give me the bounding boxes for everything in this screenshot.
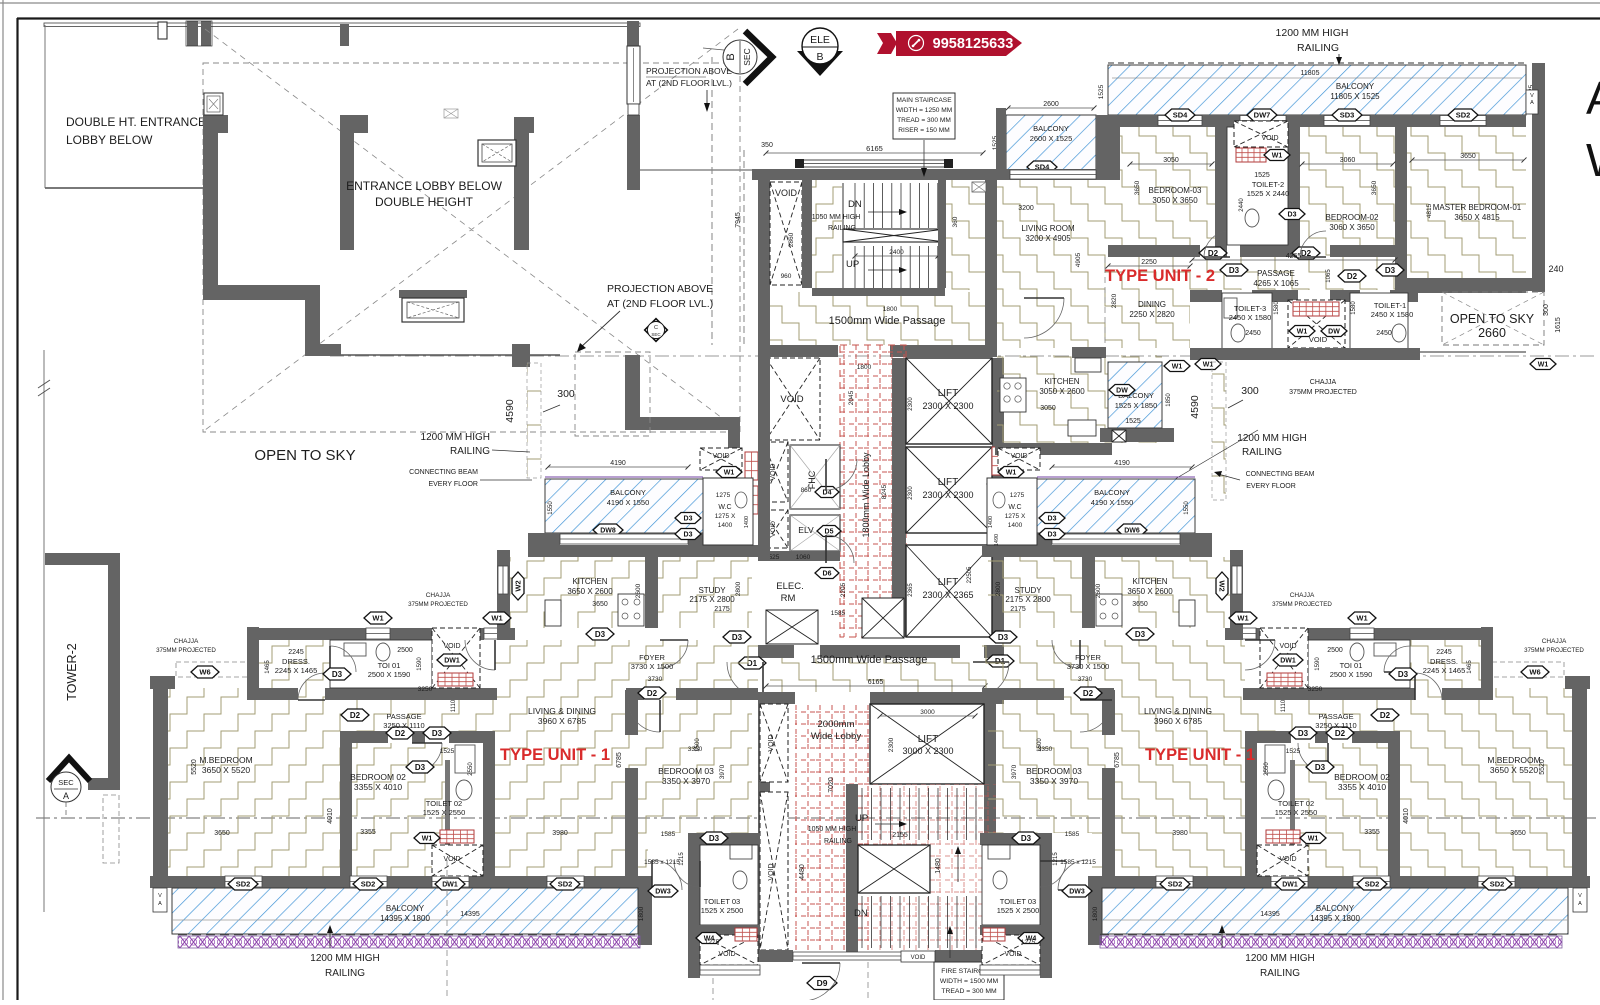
svg-text:DW1: DW1 (1282, 882, 1298, 889)
svg-text:BALCONY: BALCONY (1094, 488, 1130, 497)
svg-text:DRESS.: DRESS. (1430, 657, 1458, 666)
svg-text:SD2: SD2 (1456, 111, 1471, 120)
svg-text:W1: W1 (1308, 836, 1319, 843)
svg-text:VOID: VOID (1010, 453, 1027, 460)
svg-text:W: W (1586, 134, 1600, 186)
svg-text:W1: W1 (372, 614, 383, 623)
svg-text:D3: D3 (1021, 834, 1032, 843)
svg-text:2300: 2300 (908, 486, 914, 500)
svg-text:3730: 3730 (1078, 676, 1093, 683)
svg-text:2175: 2175 (714, 606, 730, 613)
svg-text:1400: 1400 (988, 516, 994, 528)
svg-text:SD3: SD3 (1340, 111, 1355, 120)
svg-text:CHAJJA: CHAJJA (174, 638, 199, 645)
svg-text:AT (2ND FLOOR LVL.): AT (2ND FLOOR LVL.) (607, 298, 713, 310)
svg-text:3060 X 3650: 3060 X 3650 (1329, 223, 1375, 232)
svg-text:SEC: SEC (651, 332, 661, 337)
svg-text:1585: 1585 (831, 610, 846, 617)
svg-text:3650: 3650 (1371, 180, 1378, 195)
svg-text:2250 X 2820: 2250 X 2820 (1129, 310, 1175, 319)
svg-text:LIVING ROOM: LIVING ROOM (1021, 224, 1075, 233)
svg-text:4265 X 1065: 4265 X 1065 (1253, 279, 1299, 288)
svg-text:D3: D3 (595, 630, 606, 639)
svg-text:RAILING: RAILING (828, 225, 856, 232)
svg-text:TOILET 02: TOILET 02 (1278, 799, 1314, 808)
svg-text:1400: 1400 (744, 516, 750, 528)
svg-text:2820: 2820 (1111, 293, 1118, 308)
svg-text:3980: 3980 (1172, 830, 1188, 837)
svg-text:3200: 3200 (1018, 205, 1034, 212)
svg-text:3050 X 2600: 3050 X 2600 (1039, 387, 1085, 396)
svg-text:VOID: VOID (718, 951, 735, 958)
svg-text:D3: D3 (1048, 516, 1057, 523)
svg-text:W6: W6 (1529, 668, 1540, 677)
svg-text:2045: 2045 (848, 390, 855, 405)
svg-text:1465: 1465 (1467, 660, 1473, 674)
svg-text:W2: W2 (1217, 580, 1226, 591)
svg-text:D3: D3 (709, 834, 720, 843)
svg-text:VOID: VOID (443, 643, 460, 650)
svg-text:D3: D3 (1315, 763, 1326, 772)
svg-text:D6: D6 (823, 571, 832, 578)
svg-text:3730: 3730 (648, 676, 663, 683)
svg-text:RISER = 150 MM: RISER = 150 MM (898, 127, 950, 134)
svg-text:2600 X 1525: 2600 X 1525 (1030, 134, 1073, 143)
svg-text:D9: D9 (817, 978, 828, 988)
svg-text:BALCONY: BALCONY (1336, 82, 1375, 91)
svg-text:DW3: DW3 (655, 889, 671, 896)
svg-text:EVERY FLOOR: EVERY FLOOR (1246, 483, 1296, 490)
svg-text:BEDROOM 02: BEDROOM 02 (1334, 772, 1390, 782)
svg-text:RAILING: RAILING (450, 446, 490, 457)
svg-text:D3: D3 (1288, 212, 1297, 219)
svg-text:BEDROOM 02: BEDROOM 02 (350, 772, 406, 782)
svg-text:2175 X 2800: 2175 X 2800 (1005, 595, 1051, 604)
svg-text:1200 MM HIGH: 1200 MM HIGH (421, 432, 490, 443)
svg-text:3960 X 6785: 3960 X 6785 (538, 716, 586, 726)
svg-text:B: B (816, 51, 823, 63)
svg-text:CHAJJA: CHAJJA (1290, 592, 1315, 599)
svg-text:2600: 2600 (635, 583, 642, 598)
svg-text:3050: 3050 (1163, 157, 1179, 164)
svg-text:TYPE UNIT - 1: TYPE UNIT - 1 (500, 746, 610, 764)
svg-text:LIFT: LIFT (938, 577, 959, 588)
svg-text:3000: 3000 (920, 709, 935, 716)
svg-text:1525 X 2550: 1525 X 2550 (423, 808, 466, 817)
svg-text:2175: 2175 (1010, 606, 1026, 613)
svg-text:M.BEDROOM: M.BEDROOM (199, 755, 252, 765)
svg-text:1500mm Wide Passage: 1500mm Wide Passage (811, 654, 928, 666)
svg-text:CONNECTING BEAM: CONNECTING BEAM (1246, 471, 1315, 478)
svg-text:OPEN TO SKY: OPEN TO SKY (254, 447, 355, 464)
svg-text:2175 X 2800: 2175 X 2800 (689, 595, 735, 604)
svg-text:3650: 3650 (1510, 830, 1526, 837)
svg-text:D2: D2 (350, 711, 361, 720)
svg-text:1490: 1490 (994, 534, 1000, 546)
svg-text:VOID: VOID (1309, 335, 1328, 344)
svg-text:1585: 1585 (661, 831, 676, 838)
svg-text:1275 X: 1275 X (715, 513, 736, 520)
svg-text:2860: 2860 (788, 232, 795, 247)
svg-text:1465: 1465 (265, 660, 271, 674)
svg-text:3650 X 5520: 3650 X 5520 (202, 765, 250, 775)
svg-text:DN: DN (848, 199, 862, 210)
svg-text:2600: 2600 (1095, 583, 1102, 598)
svg-text:1800: 1800 (883, 306, 898, 313)
svg-text:1500mm Wide Passage: 1500mm Wide Passage (829, 315, 946, 327)
svg-text:2300 X 2365: 2300 X 2365 (922, 590, 973, 600)
svg-text:LOBBY BELOW: LOBBY BELOW (66, 133, 153, 147)
svg-text:2300 X 2300: 2300 X 2300 (922, 401, 973, 411)
svg-text:C: C (654, 325, 658, 331)
svg-text:BEDROOM 03: BEDROOM 03 (1026, 766, 1082, 776)
svg-text:3650: 3650 (1134, 180, 1141, 195)
svg-text:11805: 11805 (1301, 70, 1320, 77)
svg-text:2365: 2365 (908, 583, 914, 597)
svg-text:V: V (1578, 893, 1582, 899)
svg-text:360: 360 (952, 216, 959, 227)
svg-text:3650 X 4815: 3650 X 4815 (1454, 213, 1500, 222)
svg-text:2205: 2205 (840, 582, 847, 597)
svg-text:TOILET-2: TOILET-2 (1252, 180, 1284, 189)
svg-text:1525: 1525 (1254, 172, 1270, 179)
svg-text:TYPE UNIT - 1: TYPE UNIT - 1 (1145, 746, 1255, 764)
svg-text:D3: D3 (1385, 266, 1396, 275)
svg-text:2450: 2450 (1376, 330, 1392, 337)
svg-text:14395 X 1800: 14395 X 1800 (380, 914, 430, 923)
svg-text:D3: D3 (732, 633, 743, 642)
svg-text:A: A (1530, 100, 1534, 106)
svg-text:3960 X 6785: 3960 X 6785 (1154, 716, 1202, 726)
svg-text:SD2: SD2 (1490, 880, 1505, 889)
svg-text:BALCONY: BALCONY (1033, 124, 1069, 133)
svg-text:EVERY FLOOR: EVERY FLOOR (428, 481, 478, 488)
svg-text:V: V (158, 893, 162, 899)
svg-text:DW: DW (1116, 388, 1128, 395)
svg-text:B: B (725, 53, 737, 60)
svg-text:2400: 2400 (889, 249, 904, 256)
svg-text:2550: 2550 (1264, 762, 1270, 776)
svg-text:CHAJJA: CHAJJA (426, 592, 451, 599)
svg-text:2300 X 2300: 2300 X 2300 (922, 490, 973, 500)
svg-text:240: 240 (1548, 264, 1563, 274)
svg-text:D2: D2 (1083, 689, 1094, 698)
svg-text:2245 X 1465: 2245 X 1465 (1423, 666, 1466, 675)
svg-text:1590: 1590 (1315, 657, 1321, 671)
svg-text:TREAD = 300 MM: TREAD = 300 MM (941, 988, 997, 995)
svg-text:UP: UP (855, 813, 868, 824)
svg-text:A: A (158, 901, 162, 907)
svg-text:1525 X 1850: 1525 X 1850 (1115, 401, 1158, 410)
svg-text:11805 X 1525: 11805 X 1525 (1330, 92, 1380, 101)
svg-text:VOID: VOID (770, 463, 777, 480)
svg-text:PROJECTION ABOVE: PROJECTION ABOVE (646, 66, 732, 76)
svg-text:4010: 4010 (327, 808, 334, 824)
svg-text:2450: 2450 (1245, 330, 1261, 337)
svg-text:1200 MM HIGH: 1200 MM HIGH (310, 953, 379, 964)
svg-text:1500: 1500 (695, 738, 701, 752)
svg-text:VOID: VOID (770, 521, 777, 537)
svg-text:1525 X 2500: 1525 X 2500 (701, 906, 744, 915)
svg-text:2800: 2800 (995, 581, 1002, 596)
svg-text:3355 X 4010: 3355 X 4010 (354, 782, 402, 792)
svg-text:5520: 5520 (1539, 759, 1546, 775)
svg-text:LIVING & DINING: LIVING & DINING (1144, 706, 1212, 716)
svg-text:4265: 4265 (1286, 253, 1302, 260)
svg-text:D3: D3 (415, 763, 426, 772)
svg-text:VOID: VOID (1279, 643, 1296, 650)
svg-text:W1: W1 (1006, 470, 1017, 477)
svg-text:D2: D2 (1380, 711, 1391, 720)
svg-text:4815: 4815 (1426, 203, 1433, 218)
svg-text:3000 X 2300: 3000 X 2300 (902, 746, 953, 756)
svg-text:1200 MM HIGH: 1200 MM HIGH (1276, 27, 1349, 39)
svg-text:2450 X 1580: 2450 X 1580 (1229, 313, 1272, 322)
svg-text:RAILING: RAILING (824, 838, 852, 845)
svg-text:4905: 4905 (1075, 252, 1082, 267)
svg-text:SD2: SD2 (558, 880, 573, 889)
svg-text:7020: 7020 (828, 777, 835, 793)
svg-text:DW1: DW1 (1280, 658, 1296, 665)
svg-text:1525 X 2500: 1525 X 2500 (997, 906, 1040, 915)
svg-text:MAIN STAIRCASE: MAIN STAIRCASE (896, 97, 952, 104)
svg-text:W.C: W.C (718, 504, 731, 511)
svg-text:1110: 1110 (1281, 699, 1287, 712)
svg-text:D5: D5 (825, 529, 834, 536)
svg-text:6165: 6165 (868, 679, 884, 686)
svg-text:D3: D3 (332, 670, 343, 679)
svg-text:RAILING: RAILING (1260, 968, 1300, 979)
svg-text:3650 X 5520: 3650 X 5520 (1490, 765, 1538, 775)
svg-text:3250 X 1110: 3250 X 1110 (383, 721, 424, 730)
svg-text:3060: 3060 (1340, 157, 1356, 164)
svg-text:1275: 1275 (716, 492, 731, 499)
svg-text:DOUBLE HEIGHT: DOUBLE HEIGHT (375, 195, 474, 209)
svg-text:TOILET 03: TOILET 03 (704, 897, 740, 906)
svg-text:2250: 2250 (1141, 259, 1157, 266)
svg-text:1580: 1580 (1351, 301, 1357, 315)
svg-text:PASSAGE: PASSAGE (1318, 712, 1353, 721)
svg-text:D4: D4 (823, 490, 832, 497)
svg-text:VOID: VOID (768, 734, 775, 751)
svg-text:3355: 3355 (1364, 829, 1380, 836)
svg-text:1275: 1275 (1010, 492, 1025, 499)
svg-text:1590: 1590 (417, 657, 423, 671)
svg-text:BALCONY: BALCONY (386, 904, 425, 913)
svg-text:W1: W1 (1272, 153, 1283, 160)
svg-text:CONNECTING BEAM: CONNECTING BEAM (409, 469, 478, 476)
svg-text:375MM PROJECTED: 375MM PROJECTED (156, 647, 216, 654)
svg-text:DW7: DW7 (1254, 111, 1271, 120)
svg-text:TOILET 03: TOILET 03 (1000, 897, 1036, 906)
svg-text:1615: 1615 (1555, 317, 1562, 333)
svg-text:DOUBLE HT. ENTRANCE: DOUBLE HT. ENTRANCE (66, 115, 206, 129)
svg-text:3050 X 3650: 3050 X 3650 (1152, 196, 1198, 205)
svg-text:14395 X 1800: 14395 X 1800 (1310, 914, 1360, 923)
svg-text:2440: 2440 (1239, 198, 1245, 212)
svg-text:1550: 1550 (1184, 501, 1190, 515)
svg-text:VOID: VOID (1004, 951, 1021, 958)
svg-text:1800: 1800 (1092, 906, 1099, 921)
svg-text:STUDY: STUDY (1014, 586, 1042, 595)
svg-text:VOID: VOID (1261, 135, 1278, 142)
svg-text:1585 x 1215: 1585 x 1215 (1060, 859, 1096, 866)
svg-text:V: V (1530, 93, 1534, 99)
svg-text:1525: 1525 (1125, 418, 1141, 425)
svg-text:3355: 3355 (360, 829, 376, 836)
svg-text:3200 X 4905: 3200 X 4905 (1025, 234, 1071, 243)
svg-text:4590: 4590 (1189, 395, 1201, 419)
svg-text:D3: D3 (684, 516, 693, 523)
svg-text:PASSAGE: PASSAGE (1257, 269, 1295, 278)
svg-text:14395: 14395 (460, 911, 480, 918)
svg-text:DW8: DW8 (600, 528, 616, 535)
svg-text:UP: UP (846, 259, 859, 270)
svg-text:350: 350 (761, 142, 773, 149)
svg-text:1060: 1060 (796, 554, 811, 561)
svg-text:SD2: SD2 (1168, 880, 1183, 889)
svg-text:8245: 8245 (881, 484, 888, 499)
svg-text:2660: 2660 (1478, 326, 1506, 340)
svg-text:W.C: W.C (1008, 504, 1021, 511)
svg-text:D3: D3 (1048, 532, 1057, 539)
svg-text:22505: 22505 (967, 566, 973, 583)
svg-text:6785: 6785 (1114, 752, 1121, 768)
svg-text:4190: 4190 (610, 460, 626, 467)
svg-text:3650: 3650 (214, 830, 230, 837)
svg-text:W1: W1 (724, 470, 735, 477)
svg-text:SD2: SD2 (361, 880, 376, 889)
svg-text:MASTER BEDROOM-01: MASTER BEDROOM-01 (1433, 203, 1522, 212)
svg-text:KITCHEN: KITCHEN (1044, 377, 1079, 386)
svg-text:1525: 1525 (440, 748, 455, 755)
svg-text:1275: 1275 (705, 939, 720, 946)
svg-text:DN: DN (854, 908, 868, 919)
svg-text:1275: 1275 (1021, 939, 1036, 946)
svg-text:TOILET 02: TOILET 02 (426, 799, 462, 808)
svg-text:1585 x 1215: 1585 x 1215 (644, 859, 680, 866)
svg-text:LIFT: LIFT (918, 734, 939, 745)
svg-text:1800mm Wide Lobby: 1800mm Wide Lobby (861, 452, 871, 538)
svg-text:DW1: DW1 (444, 658, 460, 665)
svg-text:525: 525 (769, 554, 780, 561)
svg-text:2155: 2155 (892, 832, 908, 839)
svg-text:4010: 4010 (1403, 808, 1410, 824)
svg-text:A: A (1578, 901, 1582, 907)
svg-text:2800: 2800 (735, 581, 742, 596)
svg-text:LIVING & DINING: LIVING & DINING (528, 706, 596, 716)
svg-text:TYPE UNIT - 2: TYPE UNIT - 2 (1105, 267, 1215, 285)
svg-text:DW3: DW3 (1069, 889, 1085, 896)
svg-text:2300: 2300 (908, 397, 914, 411)
svg-text:VOID: VOID (775, 188, 798, 198)
svg-text:KITCHEN: KITCHEN (572, 577, 607, 586)
svg-text:W1: W1 (1356, 614, 1367, 623)
svg-text:3650: 3650 (1460, 153, 1476, 160)
svg-text:2600: 2600 (1043, 101, 1059, 108)
svg-text:960: 960 (781, 273, 792, 280)
svg-text:ELV: ELV (798, 525, 814, 535)
svg-text:6785: 6785 (616, 752, 623, 768)
svg-text:RAILING: RAILING (1242, 447, 1282, 458)
svg-text:SD2: SD2 (1365, 880, 1380, 889)
svg-text:2500 X 1590: 2500 X 1590 (1330, 670, 1373, 679)
svg-text:1850: 1850 (1166, 393, 1172, 407)
svg-text:4190: 4190 (1114, 460, 1130, 467)
svg-text:TREAD = 300 MM: TREAD = 300 MM (897, 117, 951, 124)
svg-text:1400: 1400 (1008, 522, 1023, 529)
svg-text:BEDROOM-03: BEDROOM-03 (1149, 186, 1202, 195)
svg-text:3355 X 4010: 3355 X 4010 (1338, 782, 1386, 792)
svg-text:3250 X 1110: 3250 X 1110 (1315, 721, 1356, 730)
svg-text:D3: D3 (1135, 630, 1146, 639)
svg-text:1500: 1500 (1037, 738, 1043, 752)
svg-text:1215: 1215 (679, 852, 685, 866)
svg-text:W6: W6 (199, 668, 210, 677)
svg-text:W1: W1 (1237, 614, 1248, 623)
svg-text:OPEN TO SKY: OPEN TO SKY (1450, 312, 1535, 326)
svg-text:D2: D2 (395, 729, 406, 738)
svg-text:DW: DW (1328, 329, 1340, 336)
svg-text:3970: 3970 (1011, 764, 1018, 779)
svg-text:CHAJJA: CHAJJA (1310, 379, 1337, 386)
svg-text:375MM PROJECTED: 375MM PROJECTED (408, 601, 468, 608)
svg-text:VOID: VOID (443, 856, 460, 863)
svg-text:PASSAGE: PASSAGE (386, 712, 421, 721)
svg-text:1525 X 2440: 1525 X 2440 (1247, 189, 1290, 198)
svg-text:3650: 3650 (1132, 601, 1148, 608)
svg-text:W1: W1 (1172, 364, 1183, 371)
svg-text:4480: 4480 (799, 864, 806, 880)
svg-text:DW1: DW1 (442, 882, 458, 889)
svg-text:SD2: SD2 (236, 880, 251, 889)
svg-text:RM: RM (781, 593, 796, 604)
svg-text:D3: D3 (1229, 266, 1240, 275)
svg-text:3050: 3050 (1040, 405, 1056, 412)
svg-text:TOI 01: TOI 01 (378, 661, 401, 670)
svg-text:LIFT: LIFT (938, 477, 959, 488)
svg-text:4190 X 1550: 4190 X 1550 (607, 498, 650, 507)
svg-text:2500: 2500 (1327, 647, 1343, 654)
svg-text:1525: 1525 (1286, 748, 1301, 755)
svg-text:DRESS.: DRESS. (282, 657, 310, 666)
svg-text:3730 X 1500: 3730 X 1500 (631, 662, 674, 671)
svg-text:D3: D3 (998, 633, 1009, 642)
svg-text:1200 MM HIGH: 1200 MM HIGH (1245, 953, 1314, 964)
svg-text:300: 300 (1543, 304, 1550, 316)
svg-text:WIDTH = 1500 MM: WIDTH = 1500 MM (940, 978, 999, 985)
svg-text:VOID: VOID (911, 955, 926, 961)
svg-text:D3: D3 (684, 532, 693, 539)
svg-text:CHAJJA: CHAJJA (1542, 638, 1567, 645)
svg-text:7945: 7945 (735, 212, 742, 228)
svg-text:6165: 6165 (866, 144, 883, 153)
svg-text:STUDY: STUDY (698, 586, 726, 595)
svg-text:TOI 01: TOI 01 (1340, 661, 1363, 670)
svg-text:A: A (63, 791, 69, 801)
svg-text:3650 X 2600: 3650 X 2600 (567, 587, 613, 596)
svg-text:BALCONY: BALCONY (610, 488, 646, 497)
svg-text:1275 X: 1275 X (1005, 513, 1026, 520)
svg-text:D3: D3 (1298, 729, 1309, 738)
svg-text:3250: 3250 (418, 686, 433, 693)
svg-text:1525 X 2550: 1525 X 2550 (1275, 808, 1318, 817)
svg-text:FOYER: FOYER (1075, 653, 1101, 662)
svg-text:Wide Lobby: Wide Lobby (811, 731, 861, 742)
svg-text:D3: D3 (432, 729, 443, 738)
svg-text:1550: 1550 (548, 501, 554, 515)
svg-text:1480: 1480 (935, 858, 942, 874)
